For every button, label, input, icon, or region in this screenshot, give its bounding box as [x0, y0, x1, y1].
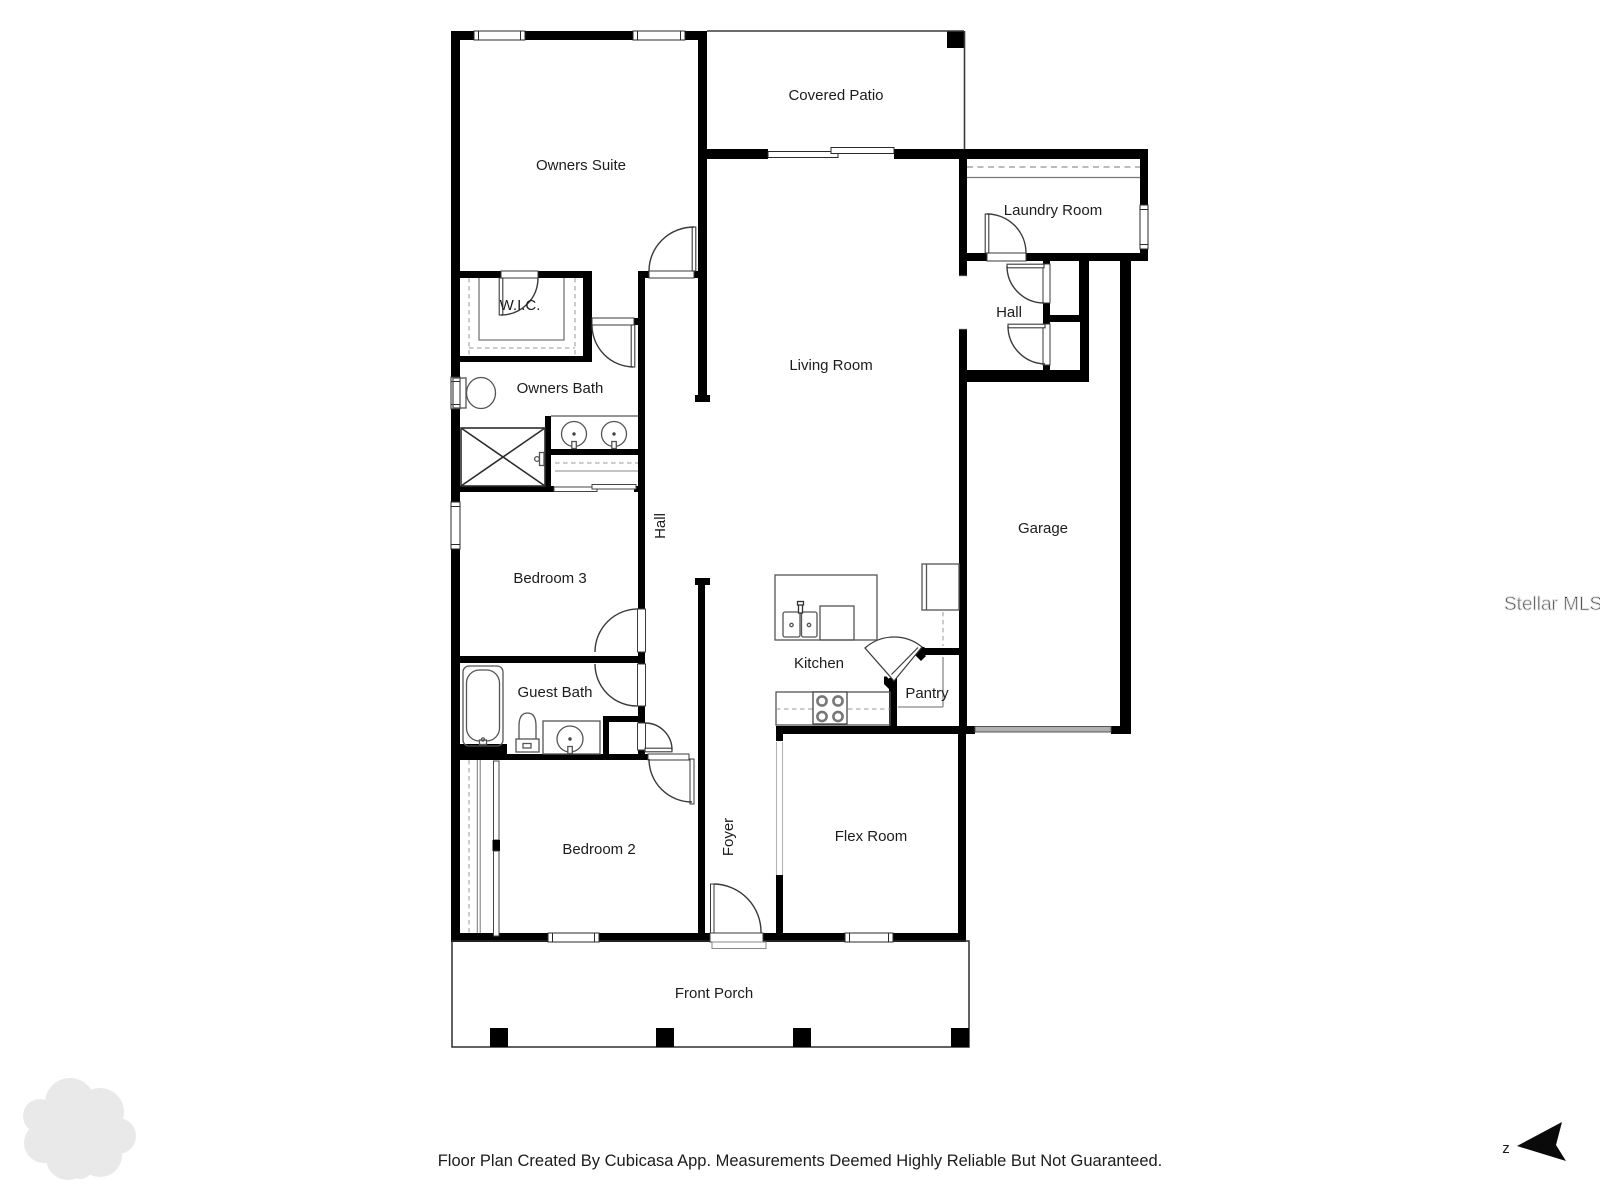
svg-text:Bedroom 2: Bedroom 2	[562, 841, 635, 858]
svg-text:z: z	[1502, 1140, 1510, 1157]
svg-text:W.I.C.: W.I.C.	[500, 297, 541, 314]
svg-text:Bedroom 3: Bedroom 3	[513, 570, 586, 587]
svg-text:Owners Suite: Owners Suite	[536, 157, 626, 174]
svg-text:Living Room: Living Room	[789, 357, 872, 374]
svg-text:Kitchen: Kitchen	[794, 655, 844, 672]
svg-text:Foyer: Foyer	[720, 818, 737, 856]
svg-text:Owners Bath: Owners Bath	[517, 380, 604, 397]
svg-text:Pantry: Pantry	[905, 685, 949, 702]
svg-text:Flex Room: Flex Room	[835, 828, 908, 845]
svg-text:Garage: Garage	[1018, 520, 1068, 537]
svg-text:Covered Patio: Covered Patio	[788, 87, 883, 104]
svg-text:Hall: Hall	[996, 304, 1022, 321]
svg-text:Hall: Hall	[652, 513, 669, 539]
svg-text:Stellar MLS: Stellar MLS	[1504, 594, 1600, 615]
svg-text:Floor Plan Created By Cubicasa: Floor Plan Created By Cubicasa App. Meas…	[438, 1152, 1163, 1170]
svg-text:Laundry Room: Laundry Room	[1004, 202, 1102, 219]
svg-text:Front Porch: Front Porch	[675, 985, 753, 1002]
svg-text:Guest Bath: Guest Bath	[517, 684, 592, 701]
